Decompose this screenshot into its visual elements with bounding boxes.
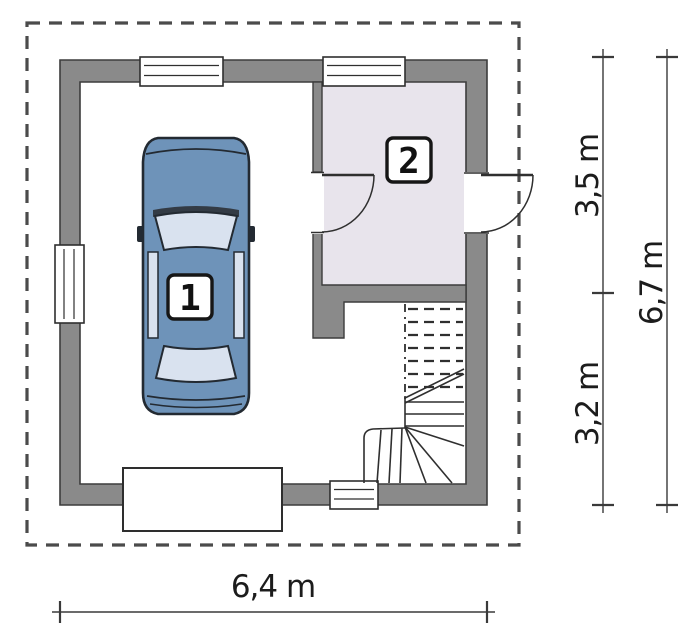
floor-plan-canvas: 1 2 3,5 m 3,2 m 6,7 m 6,4 m: [0, 0, 700, 636]
window-left-icon: [55, 245, 84, 323]
partition-wall-upper: [313, 82, 322, 172]
stair-lower-treads: [364, 396, 464, 483]
staircase: [364, 304, 464, 483]
car-side-window-right: [234, 252, 244, 338]
room2-label: 2: [398, 141, 420, 182]
window-top-right-icon: [323, 57, 405, 86]
stair-upper-flight-dashed: [408, 309, 463, 387]
window-top-left-icon: [140, 57, 223, 86]
room1-badge: 1: [168, 275, 212, 319]
room2-badge: 2: [387, 138, 431, 182]
dim-label-right-upper: 3,5 m: [570, 134, 606, 218]
floor-plan-drawing: 1 2 3,5 m 3,2 m 6,7 m 6,4 m: [0, 0, 700, 636]
window-bottom-icon: [330, 481, 378, 509]
entry-door: [464, 172, 533, 234]
room1-label: 1: [179, 278, 201, 319]
dim-label-right-lower: 3,2 m: [570, 362, 606, 446]
garage-door: [123, 468, 282, 531]
car-windshield: [155, 212, 237, 250]
dim-label-right-total: 6,7 m: [634, 241, 670, 325]
car-rear-window: [156, 346, 236, 382]
car-side-window-left: [148, 252, 158, 338]
dim-label-bottom: 6,4 m: [231, 569, 315, 605]
